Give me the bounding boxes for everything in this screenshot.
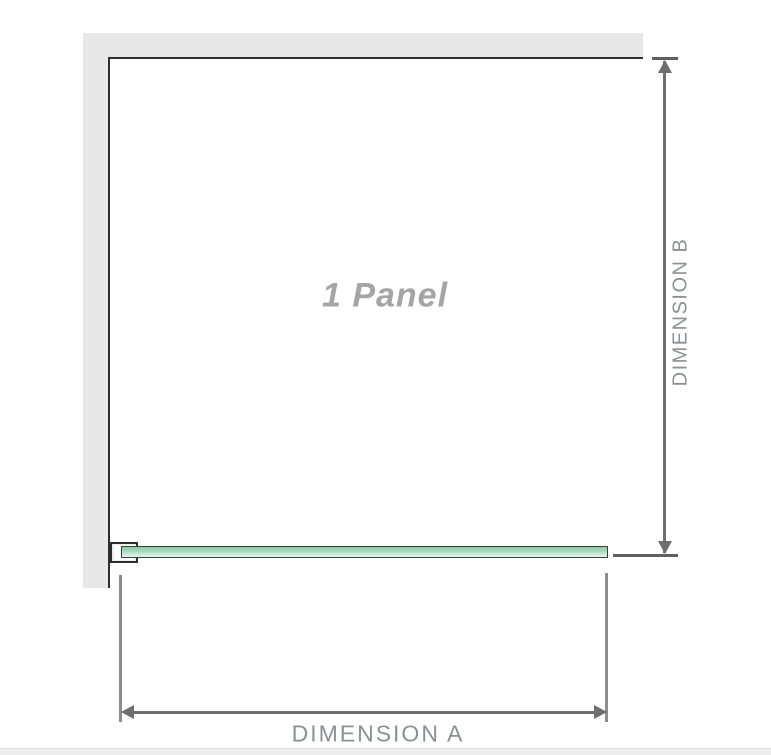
panel-outline bbox=[108, 57, 643, 588]
arrow-up-icon bbox=[658, 60, 672, 73]
dimension-b-line bbox=[663, 61, 666, 553]
glass-panel-bar bbox=[121, 546, 608, 558]
arrow-down-icon bbox=[658, 541, 672, 554]
extension-line-left bbox=[119, 575, 122, 722]
dimension-b-label: DIMENSION B bbox=[670, 238, 693, 387]
panel-label: 1 Panel bbox=[322, 277, 448, 316]
wall-top bbox=[83, 33, 643, 58]
panel-dimension-diagram: 1 Panel DIMENSION B DIMENSION A bbox=[0, 0, 771, 755]
extension-line-right bbox=[605, 573, 608, 722]
arrow-left-icon bbox=[121, 705, 134, 719]
wall-left bbox=[83, 33, 108, 588]
page-edge-strip bbox=[0, 748, 771, 755]
dimension-a-line bbox=[125, 711, 603, 714]
dimension-b-tick-bottom bbox=[613, 554, 678, 557]
arrow-right-icon bbox=[594, 705, 607, 719]
dimension-a-label: DIMENSION A bbox=[292, 721, 465, 748]
